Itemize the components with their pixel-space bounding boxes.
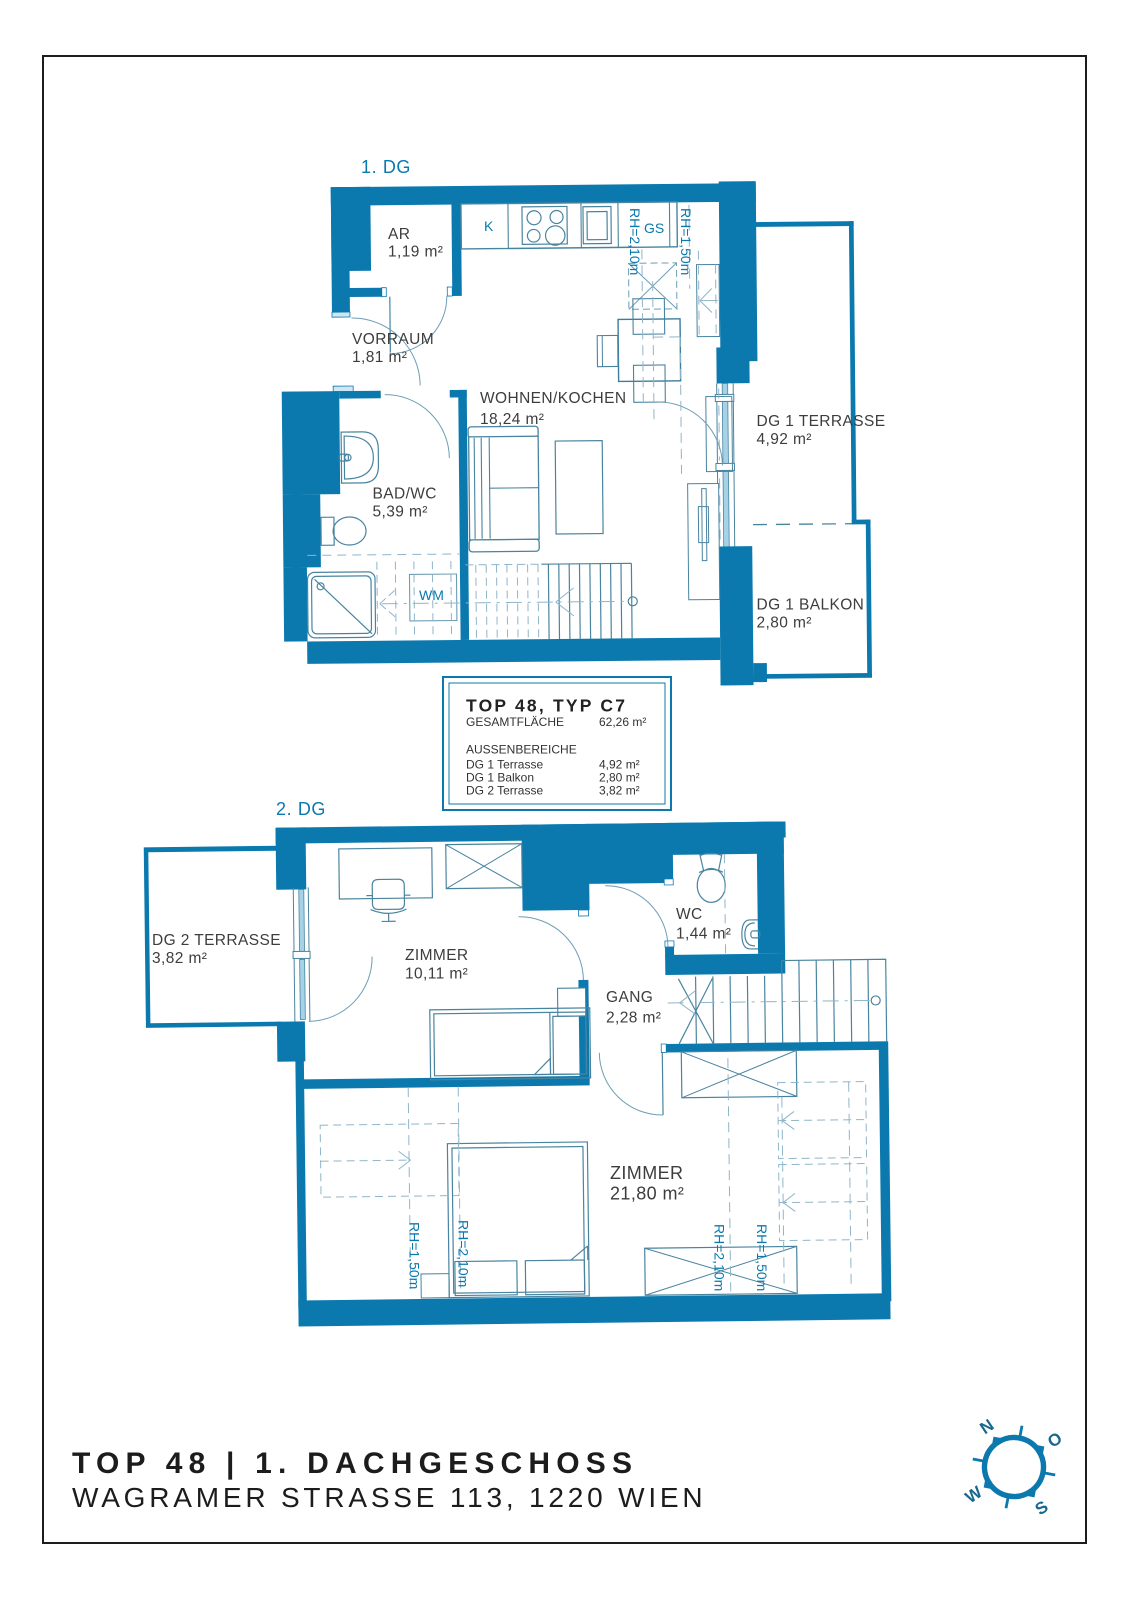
svg-text:1. DG: 1. DG [361, 157, 411, 177]
svg-text:BAD/WC: BAD/WC [373, 486, 437, 503]
svg-text:RH=2,10m: RH=2,10m [456, 1220, 472, 1287]
svg-text:DG 1 BALKON: DG 1 BALKON [757, 597, 865, 614]
svg-text:AR: AR [388, 226, 410, 243]
svg-text:2,80 m²: 2,80 m² [757, 615, 812, 632]
svg-text:WM: WM [419, 587, 444, 603]
svg-text:3,82 m²: 3,82 m² [152, 950, 207, 967]
svg-text:TOP 48 | 1. DACHGESCHOSS: TOP 48 | 1. DACHGESCHOSS [72, 1447, 638, 1480]
svg-text:WAGRAMER STRASSE 113, 1220 WIE: WAGRAMER STRASSE 113, 1220 WIEN [72, 1482, 706, 1513]
svg-text:RH=1,50m: RH=1,50m [754, 1224, 770, 1291]
svg-text:GESAMTFLÄCHE: GESAMTFLÄCHE [466, 715, 564, 729]
svg-text:ZIMMER: ZIMMER [405, 947, 469, 964]
svg-text:AUSSENBEREICHE: AUSSENBEREICHE [466, 743, 577, 757]
svg-text:RH=2,10m: RH=2,10m [712, 1224, 728, 1291]
svg-text:GANG: GANG [606, 989, 653, 1006]
svg-text:GS: GS [644, 220, 664, 236]
svg-text:DG 2 TERRASSE: DG 2 TERRASSE [152, 932, 281, 949]
svg-text:RH=2,10m: RH=2,10m [627, 208, 643, 275]
svg-text:WC: WC [676, 906, 703, 923]
svg-text:K: K [484, 218, 494, 234]
svg-text:1,19 m²: 1,19 m² [388, 244, 443, 261]
svg-text:2. DG: 2. DG [276, 799, 326, 819]
svg-text:1,44 m²: 1,44 m² [676, 926, 731, 943]
svg-text:4,92 m²: 4,92 m² [599, 758, 640, 772]
svg-text:18,24 m²: 18,24 m² [480, 411, 544, 428]
svg-text:62,26 m²: 62,26 m² [599, 715, 646, 729]
svg-text:DG 2 Terrasse: DG 2 Terrasse [466, 784, 543, 798]
svg-text:21,80 m²: 21,80 m² [610, 1184, 684, 1204]
svg-text:RH=1,50m: RH=1,50m [678, 208, 694, 275]
svg-text:2,28 m²: 2,28 m² [606, 1010, 661, 1027]
svg-text:3,82 m²: 3,82 m² [599, 784, 640, 798]
svg-text:1,81 m²: 1,81 m² [352, 349, 407, 366]
svg-text:4,92 m²: 4,92 m² [757, 431, 812, 448]
svg-text:VORRAUM: VORRAUM [352, 331, 434, 348]
svg-text:RH=1,50m: RH=1,50m [407, 1222, 423, 1289]
svg-text:10,11 m²: 10,11 m² [405, 966, 468, 983]
svg-text:DG 1 Terrasse: DG 1 Terrasse [466, 758, 543, 772]
svg-text:DG 1 Balkon: DG 1 Balkon [466, 771, 534, 785]
svg-text:TOP 48, TYP C7: TOP 48, TYP C7 [466, 696, 627, 716]
svg-text:ZIMMER: ZIMMER [610, 1163, 683, 1183]
svg-text:WOHNEN/KOCHEN: WOHNEN/KOCHEN [480, 390, 626, 407]
svg-text:5,39 m²: 5,39 m² [373, 504, 428, 521]
svg-text:DG 1 TERRASSE: DG 1 TERRASSE [757, 413, 886, 430]
svg-text:2,80 m²: 2,80 m² [599, 771, 640, 785]
